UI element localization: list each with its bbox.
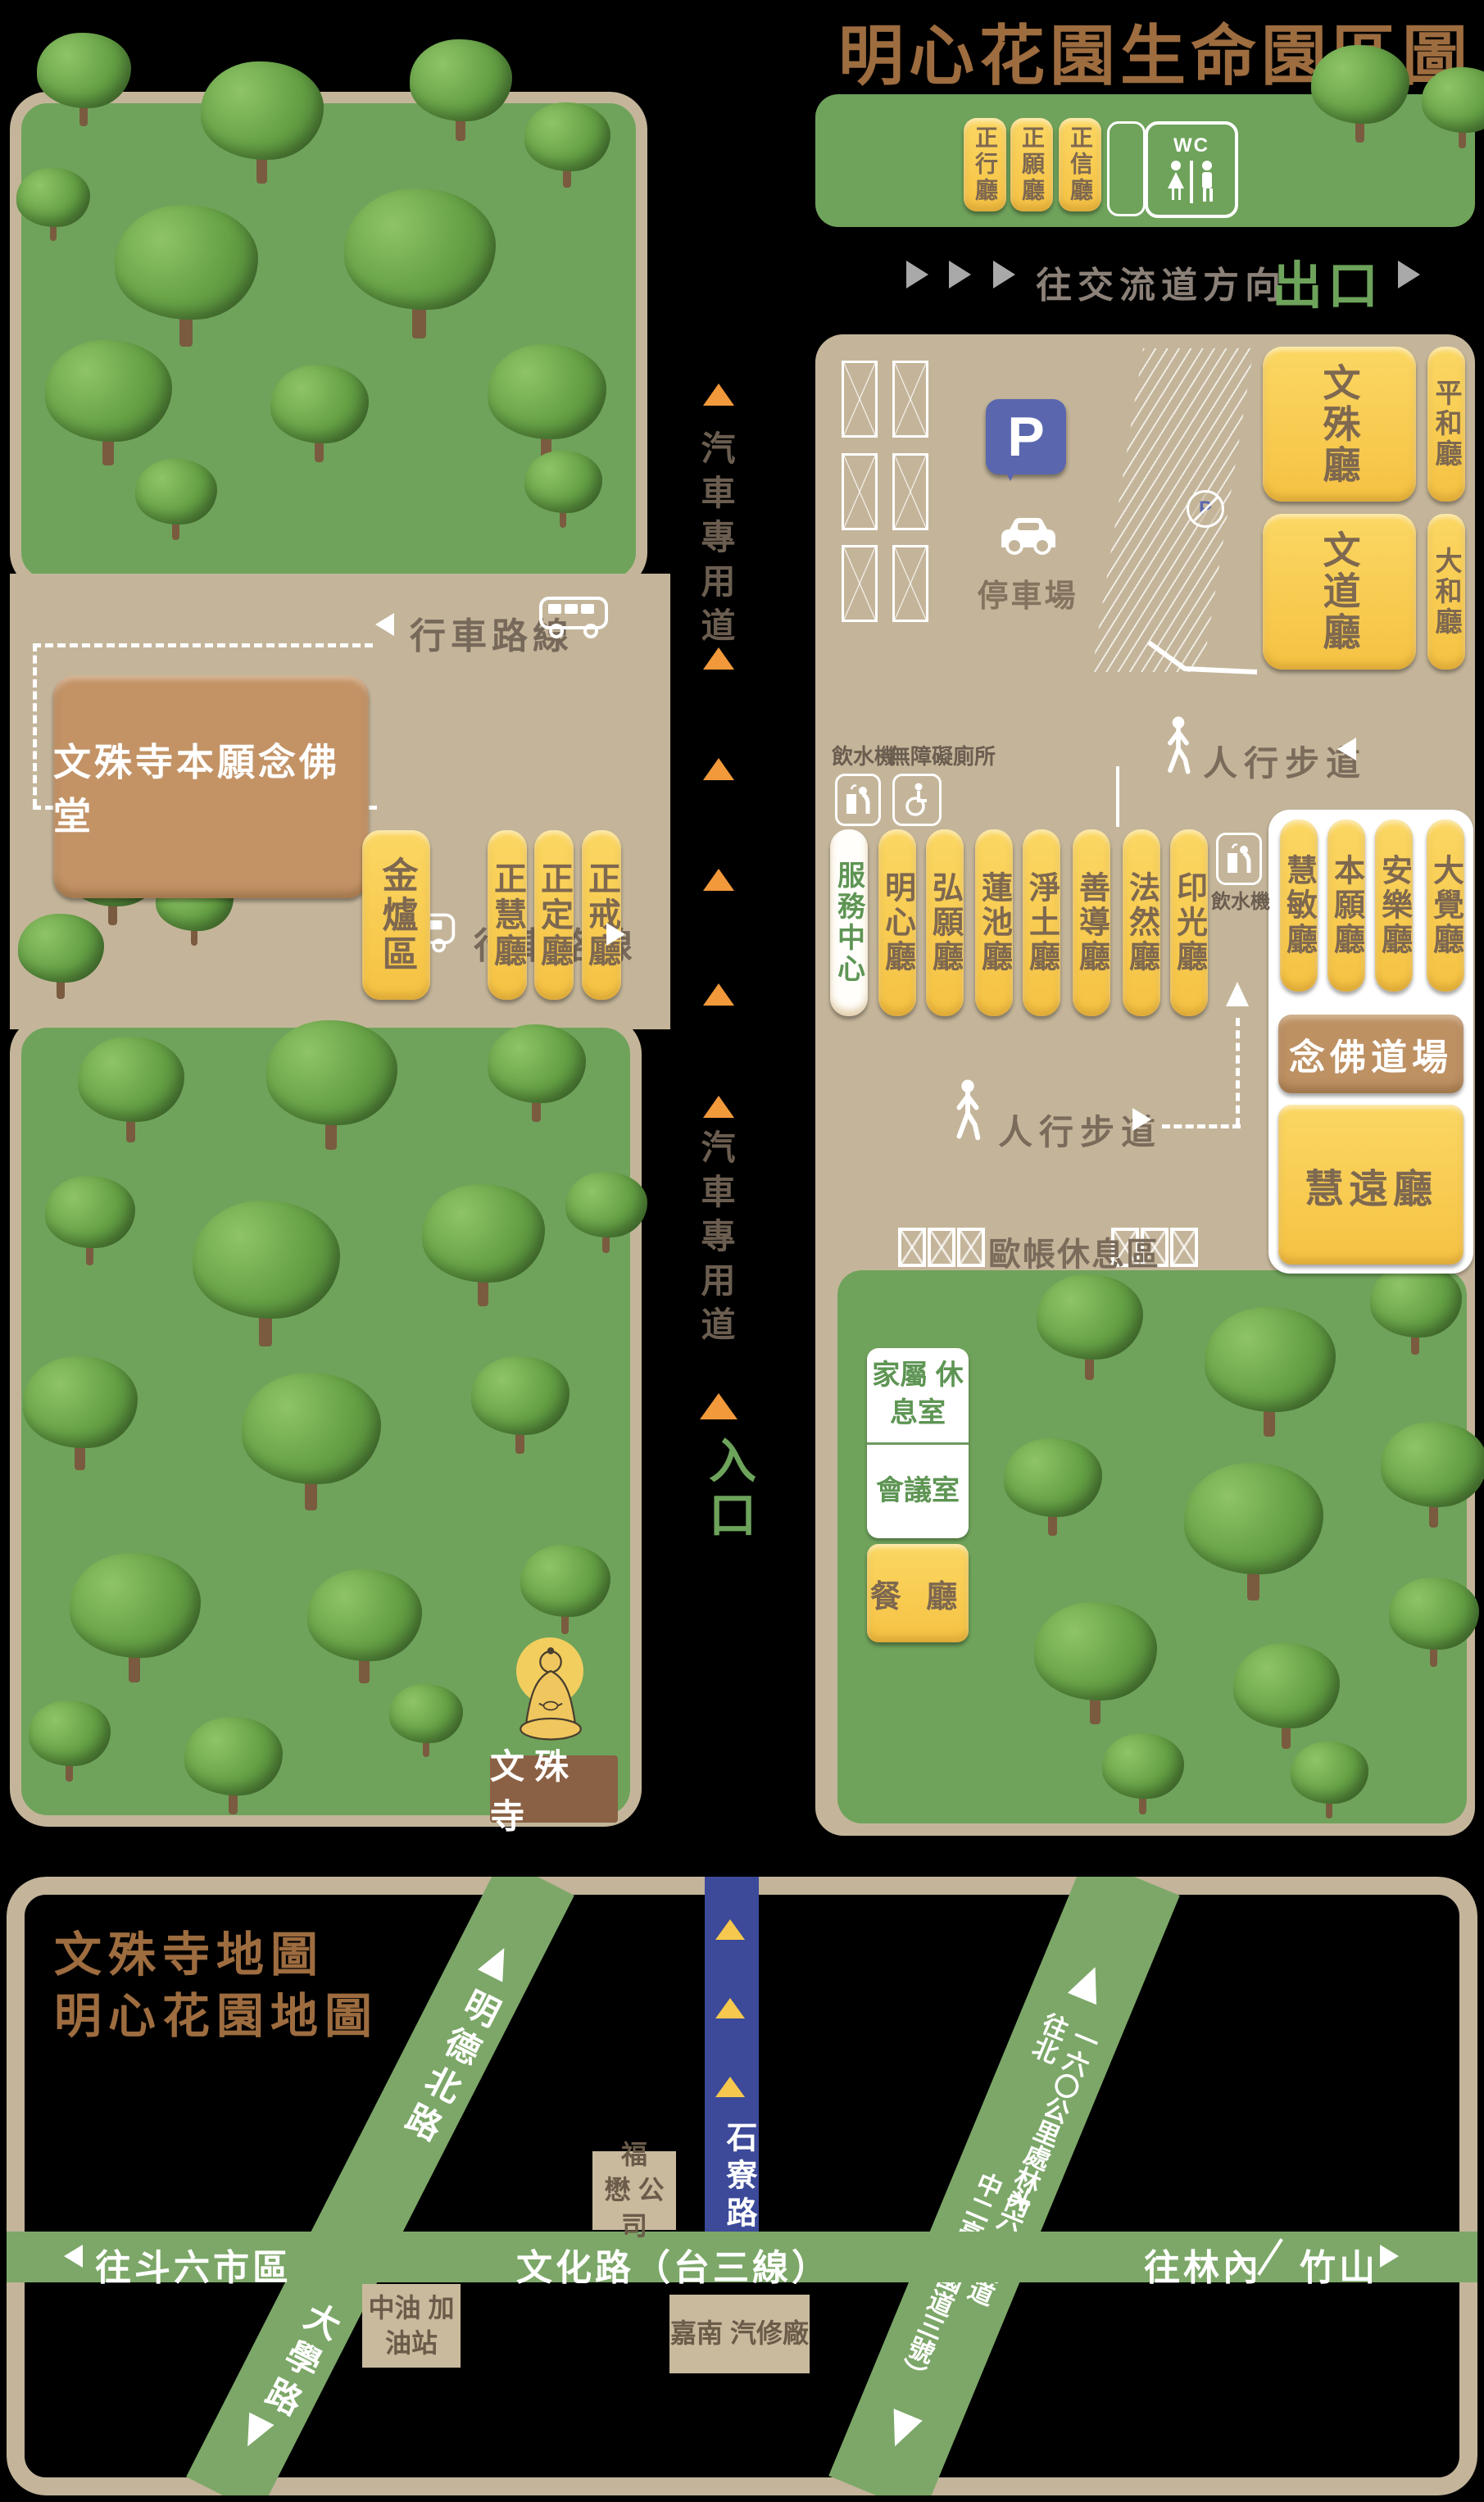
fountain-label: 飲水機 bbox=[1211, 885, 1270, 914]
wc-box: WC bbox=[1145, 121, 1238, 218]
hall-pill: 正信廳 bbox=[1059, 118, 1101, 211]
hall-pill: 本願廳 bbox=[1327, 820, 1365, 992]
wenhua-road: 往斗六市區 文化路（台三線） 往林內 竹山 bbox=[7, 2232, 1477, 2282]
temple-label: 文殊寺 bbox=[490, 1755, 618, 1823]
hall-pill: 正願廳 bbox=[1010, 118, 1053, 211]
accessible-label: 無障礙廁所 bbox=[889, 740, 996, 770]
pedestrian-icon bbox=[1162, 715, 1195, 777]
empty-facility-box bbox=[1107, 121, 1146, 216]
hall-pill: 大覺廳 bbox=[1427, 820, 1464, 992]
garden-map-page: 明心花園生命園區圖 正行廳正願廳正信廳 WC 往交流道方向 出口 P bbox=[0, 0, 1484, 2502]
road-arrow-down-icon bbox=[235, 2413, 275, 2453]
walk-route-dash bbox=[1236, 1018, 1240, 1126]
fumao-box: 福懋 公司 bbox=[592, 2151, 676, 2230]
wenshu-hall: 文殊廳 bbox=[1263, 347, 1416, 502]
restroom-icon bbox=[1161, 159, 1222, 205]
drive-route-arrow-icon bbox=[606, 923, 625, 946]
hall-pill: 慧敏廳 bbox=[1280, 820, 1318, 992]
jinlu-zone: 金爐區 bbox=[362, 830, 430, 1000]
parking-stall-icon bbox=[892, 361, 928, 438]
car-road-arrow-icon bbox=[703, 983, 734, 1006]
road-map: 明德北路 大學路 往北 一六〇公里處林內 中二高（國道三號） 斗六交流道 石寮路 bbox=[7, 1877, 1477, 2495]
walkway-arrow-icon bbox=[1132, 1108, 1151, 1131]
pinghe-hall: 平和廳 bbox=[1427, 347, 1465, 502]
parking-stall-icon bbox=[892, 545, 928, 622]
main-nianfo-hall: 文殊寺本願念佛堂 bbox=[53, 675, 369, 898]
shiliao-road-label: 石寮路 bbox=[716, 2121, 761, 2234]
hall-pill: 善導廳 bbox=[1073, 829, 1110, 1016]
dahe-hall: 大和廳 bbox=[1427, 514, 1465, 670]
wendao-hall: 文道廳 bbox=[1263, 514, 1416, 670]
walk-route-arrow-icon bbox=[1226, 982, 1249, 1006]
curb-marking bbox=[1146, 638, 1260, 677]
no-parking-icon: P bbox=[1187, 490, 1224, 528]
buddha-icon bbox=[503, 1646, 598, 1752]
to-douliu-label: 往斗六市區 bbox=[95, 2238, 292, 2291]
parking-stall-icon bbox=[842, 545, 878, 622]
zhushan-label: 竹山 bbox=[1300, 2238, 1378, 2291]
hall-pill: 蓮池廳 bbox=[975, 829, 1013, 1016]
to-interchange-label: 往交流道方向 bbox=[1036, 256, 1287, 308]
tent-marker-icon bbox=[928, 1228, 955, 1267]
car-icon bbox=[995, 505, 1060, 557]
parking-stall-icon bbox=[892, 453, 928, 530]
car-road-label: 汽車專用道 bbox=[698, 1129, 741, 1351]
north-garden-zone bbox=[10, 92, 647, 590]
accessible-toilet-icon bbox=[892, 774, 942, 826]
car-road-arrow-icon bbox=[703, 869, 734, 891]
hall-pill: 正行廳 bbox=[964, 118, 1006, 211]
pedestrian-icon bbox=[951, 1078, 985, 1143]
fountain-icon bbox=[1216, 833, 1262, 885]
car-road-arrow-icon bbox=[703, 758, 734, 780]
hall-pill: 印光廳 bbox=[1170, 829, 1208, 1016]
parking-stall-icon bbox=[842, 361, 878, 438]
parking-label: 停車場 bbox=[972, 570, 1083, 615]
tent-rest-label: 歐帳休息區 bbox=[988, 1228, 1160, 1275]
hall-pill: 法然廳 bbox=[1123, 829, 1160, 1016]
parking-sign: P bbox=[986, 399, 1066, 475]
map-title-2: 明心花園地圖 bbox=[54, 1978, 379, 2046]
road-arrow-up-icon bbox=[478, 1941, 517, 1982]
car-road-arrow-icon bbox=[703, 384, 734, 406]
wenhua-road-label: 文化路（台三線） bbox=[516, 2238, 831, 2291]
hall-pill: 正戒廳 bbox=[582, 830, 621, 1000]
fountain-icon bbox=[835, 774, 881, 826]
rooms-box: 家屬 休息室 會議室 bbox=[867, 1348, 969, 1538]
exit-label: 出口 bbox=[1272, 244, 1383, 318]
drive-route-dash bbox=[33, 643, 37, 807]
exit-arrow-icon bbox=[949, 261, 971, 288]
hall-pill: 淨土廳 bbox=[1023, 829, 1060, 1016]
drive-route-arrow-icon bbox=[375, 613, 394, 636]
huiyuan-hall: 慧遠廳 bbox=[1278, 1105, 1464, 1265]
bus-icon bbox=[537, 592, 610, 641]
wc-label: WC bbox=[1173, 134, 1209, 157]
dining-hall: 餐 廳 bbox=[867, 1544, 969, 1642]
page-title: 明心花園生命園區圖 bbox=[838, 3, 1473, 98]
tent-marker-icon bbox=[1170, 1228, 1198, 1267]
drive-route-dash bbox=[33, 643, 373, 647]
car-road-arrow-icon bbox=[703, 1096, 734, 1118]
tent-marker-icon bbox=[957, 1228, 985, 1267]
entrance-arrow-icon bbox=[700, 1393, 737, 1419]
to-linnei-label: 往林內 bbox=[1144, 2238, 1262, 2291]
road-arrow-left-icon bbox=[64, 2245, 83, 2268]
walk-route-dash bbox=[1162, 1124, 1241, 1128]
car-road-arrow-icon bbox=[703, 647, 734, 670]
shiliao-road: 石寮路 bbox=[705, 1877, 759, 2234]
hall-pill: 正慧廳 bbox=[488, 830, 527, 1000]
hall-pill: 安樂廳 bbox=[1375, 820, 1413, 992]
map-title-1: 文殊寺地圖 bbox=[54, 1916, 324, 1985]
road-arrow-down-icon bbox=[881, 2409, 923, 2452]
nianfo-daochang: 念佛道場 bbox=[1278, 1015, 1464, 1093]
tent-marker-icon bbox=[898, 1228, 926, 1267]
walkway-divider bbox=[1116, 766, 1119, 827]
hall-pill: 正定廳 bbox=[534, 830, 574, 1000]
hall-pill: 弘願廳 bbox=[926, 829, 964, 1016]
cpc-station-box: 中油 加油站 bbox=[362, 2284, 461, 2368]
road-arrow-up-icon bbox=[715, 2077, 745, 2097]
exit-arrow-icon bbox=[993, 261, 1015, 288]
fountain-label: 飲水機 bbox=[832, 740, 896, 770]
entrance-label: 入口 bbox=[693, 1436, 762, 1544]
exit-arrow-icon bbox=[906, 261, 928, 288]
service-center: 服務中心 bbox=[830, 829, 868, 1016]
road-arrow-right-icon bbox=[1380, 2245, 1399, 2268]
meeting-room-label: 會議室 bbox=[867, 1445, 969, 1539]
exit-arrow-icon bbox=[1398, 261, 1420, 288]
family-room-label: 家屬 休息室 bbox=[867, 1348, 969, 1445]
parking-stall-icon bbox=[842, 453, 878, 530]
road-arrow-up-icon bbox=[715, 1919, 745, 1940]
road-arrow-up-icon bbox=[715, 1998, 745, 2018]
hall-pill: 明心廳 bbox=[878, 829, 916, 1016]
car-road-label: 汽車專用道 bbox=[698, 430, 741, 652]
jianan-garage-box: 嘉南 汽修廠 bbox=[669, 2295, 810, 2373]
road-arrow-up-icon bbox=[1068, 1961, 1110, 2005]
walkway-arrow-icon bbox=[1337, 738, 1356, 761]
